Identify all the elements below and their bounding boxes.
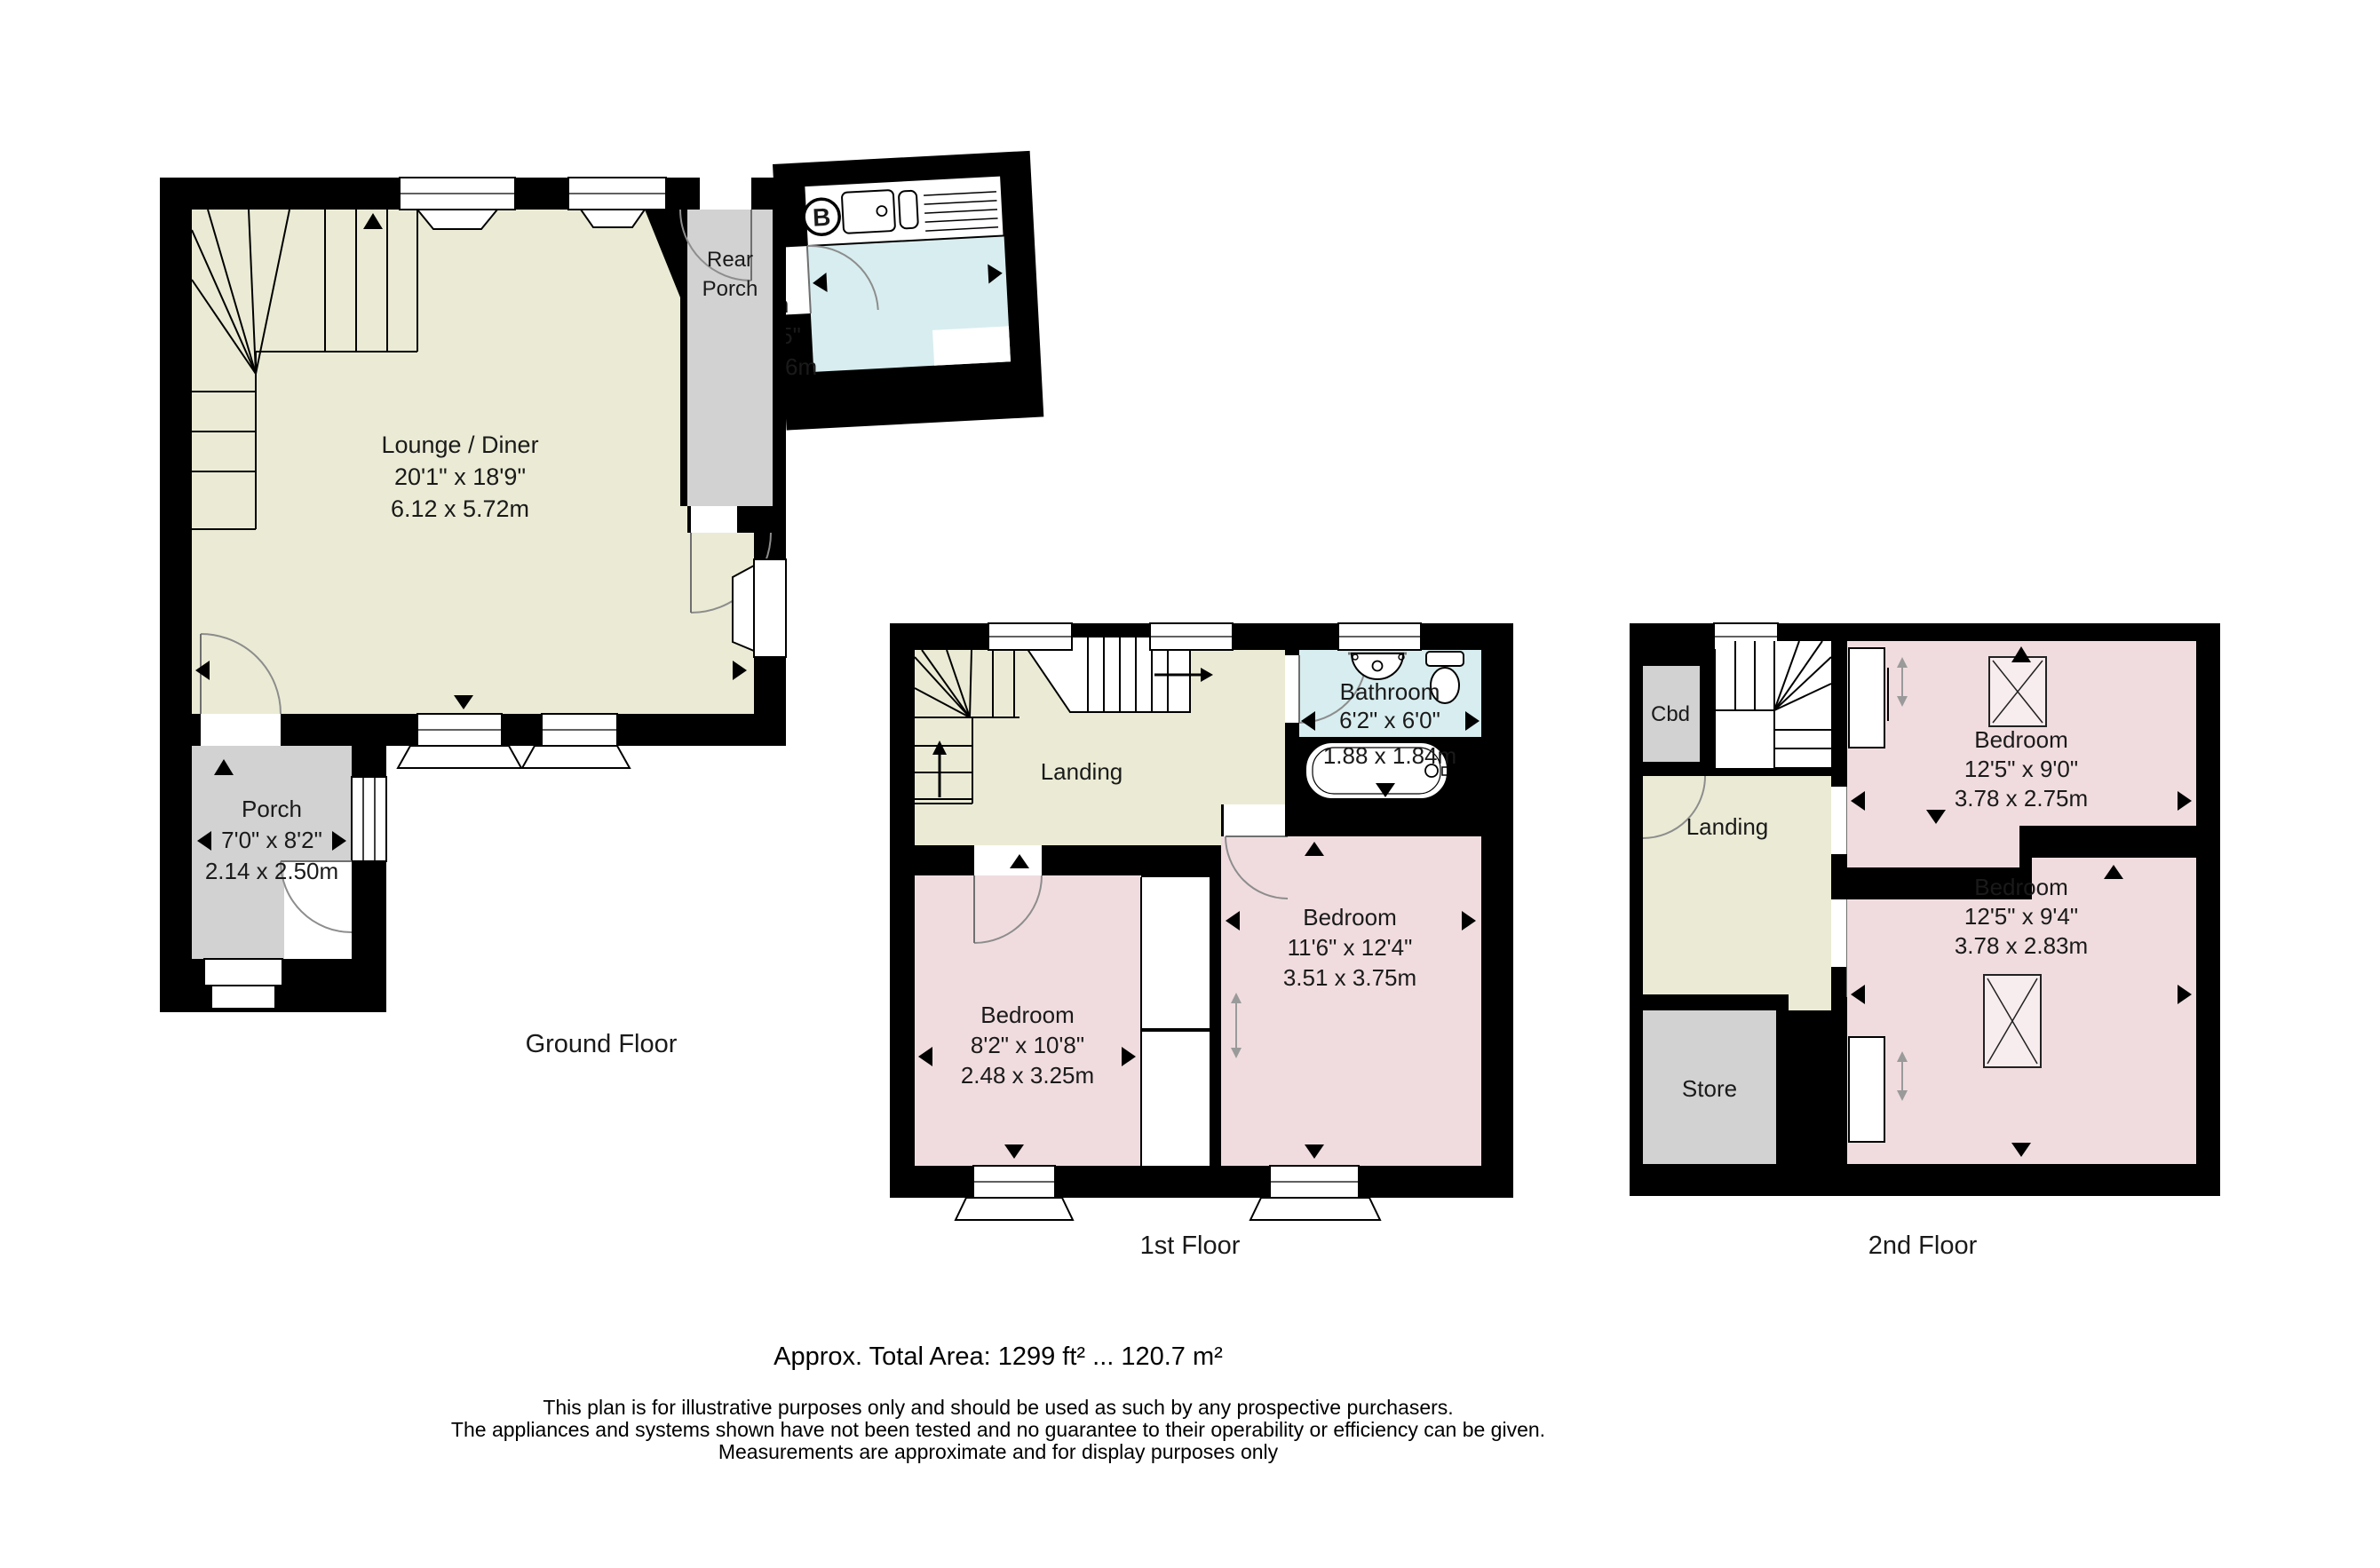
room-dim-metric: 2.48 x 3.25m bbox=[961, 1062, 1094, 1089]
room-name: Store bbox=[1682, 1075, 1737, 1102]
room-dim-imperial: 7'0" x 8'2" bbox=[221, 827, 322, 853]
room-name: Porch bbox=[702, 277, 758, 301]
room-name: Bedroom bbox=[980, 1002, 1075, 1028]
disclaimer-line: This plan is for illustrative purposes o… bbox=[0, 1397, 1996, 1419]
room-name: Cbd bbox=[1651, 702, 1690, 726]
wardrobe-icon bbox=[1849, 1037, 1884, 1142]
chimney-void bbox=[1141, 845, 1221, 1166]
lounge-rear-door-opening bbox=[691, 506, 737, 533]
boiler-label: B bbox=[812, 203, 831, 232]
bedroom-right-door-opening bbox=[1224, 804, 1285, 836]
room-name: Rear bbox=[707, 248, 753, 272]
floorplan-page: B Kitchen 8'0" x 8'5" 2.45 x 2.56m bbox=[0, 0, 2380, 1568]
bathroom-label: Bathroom 6'2" x 6'0" 1.88 x 1.84m bbox=[1323, 678, 1456, 769]
bedroom-right-label: Bedroom 11'6" x 12'4" 3.51 x 3.75m bbox=[1283, 904, 1416, 991]
room-dim-metric: 3.51 x 3.75m bbox=[1283, 964, 1416, 991]
room-dim-imperial: 20'1" x 18'9" bbox=[394, 463, 526, 490]
window-icon bbox=[1338, 623, 1421, 650]
floor-title: 1st Floor bbox=[1140, 1231, 1241, 1260]
window-icon bbox=[352, 777, 386, 861]
room-name: Landing bbox=[1041, 758, 1123, 785]
room-name: Lounge / Diner bbox=[381, 432, 538, 458]
window-icon bbox=[956, 1166, 1073, 1220]
kitchen-wing: B bbox=[772, 151, 1043, 431]
room-name: Bedroom bbox=[1974, 726, 2068, 753]
floor-title: Ground Floor bbox=[526, 1030, 678, 1058]
bathroom-door-opening bbox=[1285, 655, 1299, 723]
window-icon bbox=[204, 959, 282, 1009]
boiler-icon: B bbox=[803, 198, 840, 235]
window-icon bbox=[733, 559, 786, 657]
bedroom-top-door-opening bbox=[1831, 787, 1847, 854]
bedroom-bottom-label: Bedroom 12'5" x 9'4" 3.78 x 2.83m bbox=[1955, 874, 2088, 959]
room-dim-imperial: 12'5" x 9'0" bbox=[1964, 756, 2078, 782]
room-name: Landing bbox=[1686, 813, 1769, 840]
porch-lounge-door-opening bbox=[201, 714, 281, 746]
room-dim-metric: 6.12 x 5.72m bbox=[391, 495, 529, 522]
window-icon bbox=[1150, 623, 1233, 650]
kitchen-recess bbox=[932, 326, 1011, 365]
first-floor-plan: Bathroom 6'2" x 6'0" 1.88 x 1.84m bbox=[888, 613, 1527, 1270]
skylight-icon bbox=[1989, 657, 2046, 726]
store-right-wall bbox=[1776, 994, 1789, 1164]
room-name: Bedroom bbox=[1303, 904, 1397, 931]
bedroom-left-door-opening bbox=[974, 845, 1042, 875]
room-name: Porch bbox=[242, 796, 302, 822]
total-area-text: Approx. Total Area: 1299 ft² ... 120.7 m… bbox=[0, 1342, 1996, 1372]
footer-notes: Approx. Total Area: 1299 ft² ... 120.7 m… bbox=[0, 1342, 1996, 1463]
landing-floor bbox=[1643, 776, 1831, 994]
bedroom-top-label: Bedroom 12'5" x 9'0" 3.78 x 2.75m bbox=[1955, 726, 2088, 812]
bedroom-right-floor bbox=[1221, 836, 1481, 1166]
room-name: Bedroom bbox=[1974, 874, 2068, 900]
room-dim-metric: 3.78 x 2.75m bbox=[1955, 785, 2088, 812]
room-dim-imperial: 12'5" x 9'4" bbox=[1964, 903, 2078, 930]
landing-floor bbox=[1789, 994, 1831, 1010]
room-dim-imperial: 8'2" x 10'8" bbox=[971, 1032, 1084, 1058]
disclaimer-line: Measurements are approximate and for dis… bbox=[0, 1441, 1996, 1463]
bedroom-divider-wall bbox=[2019, 826, 2196, 858]
second-floor-plan: Cbd Landing Store bbox=[1625, 613, 2265, 1296]
skylight-icon bbox=[1984, 975, 2041, 1067]
lounge-label: Lounge / Diner 20'1" x 18'9" 6.12 x 5.72… bbox=[381, 432, 538, 522]
room-dim-imperial: 11'6" x 12'4" bbox=[1288, 934, 1413, 961]
bedroom-bottom-door-opening bbox=[1831, 899, 1847, 967]
store-top-wall bbox=[1643, 994, 1789, 1010]
room-dim-imperial: 6'2" x 6'0" bbox=[1339, 707, 1440, 733]
window-icon bbox=[988, 623, 1072, 650]
wardrobe-icon bbox=[1849, 648, 1888, 748]
floor-title: 2nd Floor bbox=[1868, 1231, 1978, 1260]
lounge-floor bbox=[645, 297, 680, 714]
rear-porch-door-opening bbox=[700, 178, 751, 210]
room-dim-metric: 3.78 x 2.83m bbox=[1955, 932, 2088, 959]
room-dim-metric: 1.88 x 1.84m bbox=[1323, 742, 1456, 769]
disclaimer-line: The appliances and systems shown have no… bbox=[0, 1419, 1996, 1441]
room-name: Bathroom bbox=[1340, 678, 1440, 705]
bedroom-left-label: Bedroom 8'2" x 10'8" 2.48 x 3.25m bbox=[961, 1002, 1094, 1089]
room-dim-metric: 2.14 x 2.50m bbox=[205, 858, 338, 884]
